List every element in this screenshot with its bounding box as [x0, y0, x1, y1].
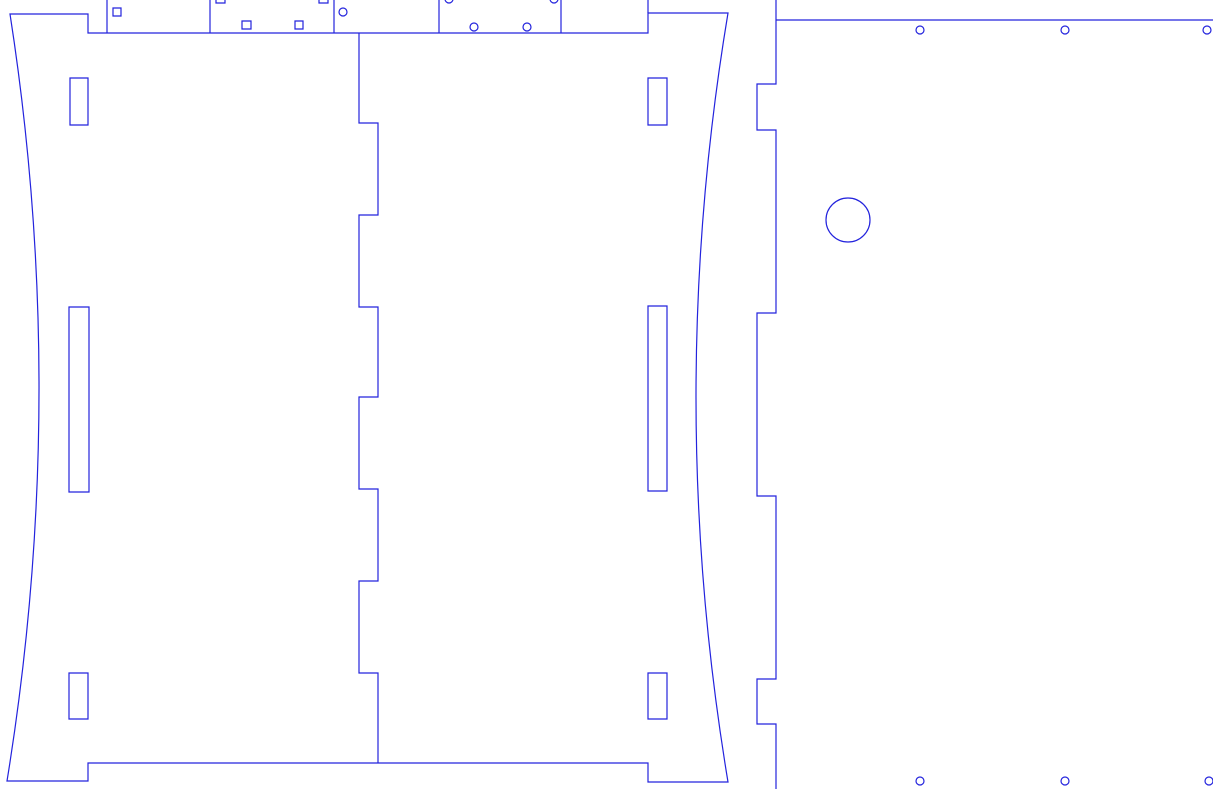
- mounting-hole-bottom-1: [916, 777, 924, 785]
- slot-left-bottom: [69, 673, 88, 719]
- circle-hole-1: [339, 8, 347, 16]
- circle-hole-5: [523, 23, 531, 31]
- slot-left-middle: [69, 307, 89, 492]
- mounting-hole-top-3: [1203, 26, 1211, 34]
- mounting-hole-top-2: [1061, 26, 1069, 34]
- circle-hole-3-clipped: [550, 0, 558, 3]
- finger-joint-edge: [359, 33, 378, 763]
- slot-left-top: [70, 78, 88, 125]
- circle-hole-4: [470, 23, 478, 31]
- square-hole-5: [295, 21, 303, 29]
- circle-hole-2-clipped: [445, 0, 453, 3]
- laser-cut-layout: [0, 0, 1213, 789]
- drawing-canvas: [0, 0, 1213, 789]
- slot-right-top: [648, 78, 667, 125]
- square-hole-2-clipped: [216, 0, 225, 3]
- square-hole-3-clipped: [319, 0, 328, 3]
- mounting-hole-top-1: [916, 26, 924, 34]
- large-circle-cutout: [826, 198, 870, 242]
- mounting-hole-bottom-2: [1061, 777, 1069, 785]
- slot-right-middle: [648, 306, 667, 491]
- back-panel-left-edge: [757, 0, 776, 789]
- square-hole-1: [113, 8, 121, 16]
- slot-right-bottom: [648, 673, 667, 719]
- square-hole-4: [242, 21, 251, 29]
- mounting-hole-bottom-3: [1205, 777, 1213, 785]
